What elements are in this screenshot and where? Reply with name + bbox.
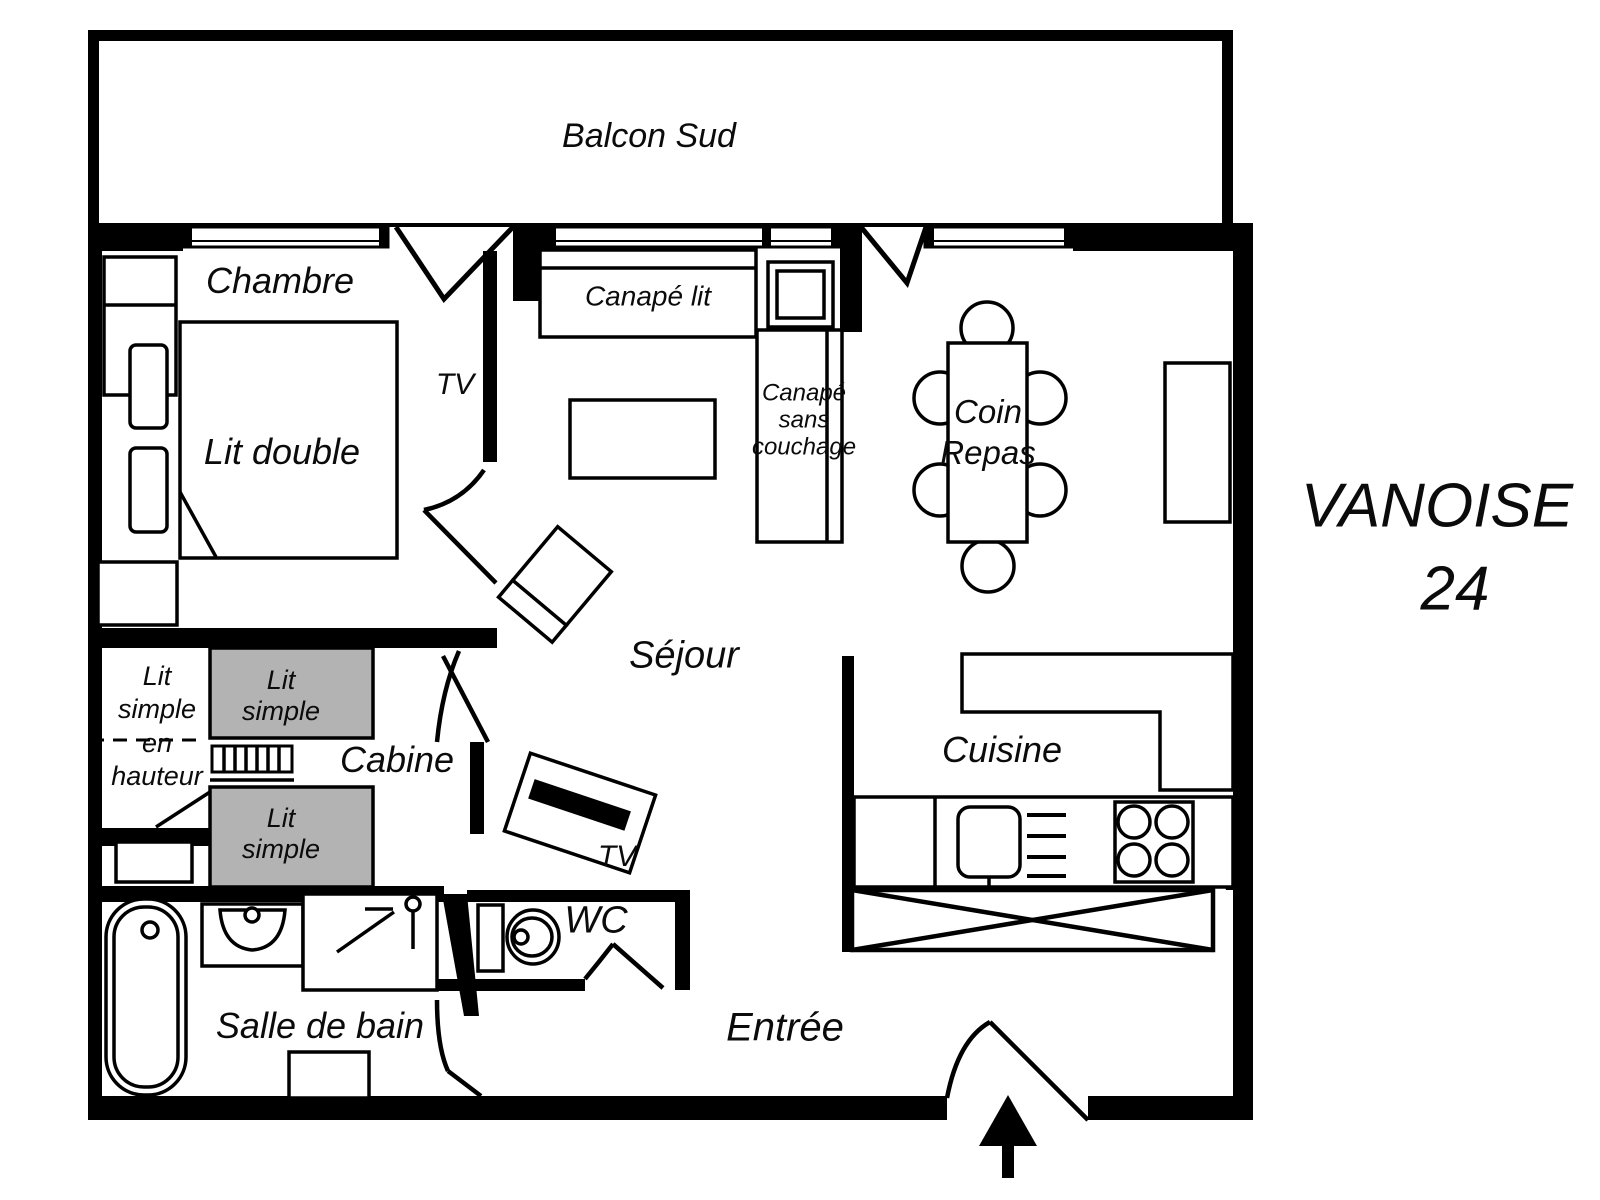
south-wall-left [88, 1096, 947, 1120]
west-wall [88, 223, 102, 1120]
door-cabin [437, 651, 488, 742]
bathtub-drain [142, 922, 158, 938]
nightstand-top [130, 345, 167, 428]
bedroom-east-wall [483, 251, 497, 462]
cabin-east-wall [470, 742, 484, 834]
plan-title: VANOISE [1301, 471, 1573, 540]
toilet-cistern [478, 905, 503, 971]
label-single-bed-bottom: Lit simple [242, 803, 320, 865]
label-sofa-plain-l2: sans [752, 408, 856, 435]
label-dining-l2: Repas [940, 432, 1035, 473]
plan-title-number: 24 [1421, 554, 1490, 623]
nightstand-bottom [130, 448, 167, 532]
label-sofa-bed: Canapé lit [585, 280, 711, 311]
hob-burner [1156, 806, 1188, 838]
sideboard [1165, 363, 1230, 522]
balcony-door-living [861, 227, 926, 283]
bathroom-wc-wedge-wall [442, 894, 479, 1016]
label-single-top-l1: Lit [242, 665, 320, 696]
hob-burner [1118, 844, 1150, 876]
kitchen-sink [958, 807, 1020, 877]
label-balcony: Balcon Sud [562, 117, 736, 155]
label-kitchen: Cuisine [942, 730, 1062, 770]
north-wall-d [1073, 224, 1253, 251]
east-wall [1233, 224, 1253, 1120]
shower-head [406, 897, 420, 911]
window-living [547, 227, 840, 247]
label-living-tv: TV [598, 840, 636, 874]
wc-right-wall [675, 891, 690, 990]
hob-burner [1156, 844, 1188, 876]
label-bathroom: Salle de bain [216, 1006, 424, 1046]
basin-tap [245, 908, 259, 922]
wc-bottom-wall [435, 979, 585, 991]
bunk-shelf [116, 842, 192, 882]
coffee-table [570, 400, 715, 478]
label-wc: WC [564, 900, 627, 943]
door-entrance [947, 1022, 1088, 1120]
wc-furniture [478, 905, 559, 971]
balcony-wall-right [1222, 30, 1233, 225]
entrance-arrow-icon [979, 1095, 1037, 1178]
label-sofa-plain: Canapé sans couchage [752, 381, 856, 462]
label-entry: Entrée [726, 1006, 844, 1051]
kitchen-bar [852, 890, 1213, 950]
label-bedroom: Chambre [206, 261, 354, 301]
balcony-wall-top [88, 30, 1233, 41]
kitchen-furniture [852, 654, 1233, 950]
north-wall-a [88, 224, 183, 251]
bunk-ladder [210, 746, 294, 780]
hob-burner [1118, 806, 1150, 838]
label-bunk-l4: hauteur [111, 760, 203, 793]
label-bunk-l2: simple [111, 694, 203, 727]
south-wall-right [1088, 1096, 1253, 1120]
label-single-bed-top: Lit simple [242, 665, 320, 727]
door-wc [585, 944, 663, 988]
bedroom-cupboard [98, 562, 177, 625]
label-bunk-l1: Lit [111, 660, 203, 693]
label-corridor-tv: TV [436, 368, 474, 402]
label-dining: Coin Repas [940, 391, 1035, 474]
label-living: Séjour [629, 635, 739, 678]
label-single-bottom-l2: simple [242, 834, 320, 865]
floor-plan: Balcon Sud Chambre Lit double TV Canapé … [0, 0, 1600, 1200]
north-wall-pillar-c [840, 224, 862, 332]
label-sofa-plain-l1: Canapé [752, 381, 856, 408]
living-furniture [499, 250, 842, 873]
washing-machine [289, 1052, 369, 1098]
armchair [499, 527, 612, 642]
bathroom-furniture [106, 894, 437, 1098]
label-bunk: Lit simple en hauteur [111, 660, 203, 794]
label-sofa-plain-l3: couchage [752, 434, 856, 461]
door-bedroom [424, 470, 496, 583]
label-single-bottom-l1: Lit [242, 803, 320, 834]
window-dining [925, 227, 1073, 247]
balcony-wall-left [88, 30, 99, 225]
label-cabin: Cabine [340, 740, 454, 780]
dining-chair [962, 540, 1014, 592]
label-double-bed: Lit double [204, 432, 360, 472]
label-bunk-l3: en [111, 727, 203, 760]
bedroom-cabin-wall [88, 628, 497, 648]
window-bedroom [183, 227, 388, 247]
bunk-diagonal [156, 792, 210, 827]
label-single-top-l2: simple [242, 696, 320, 727]
label-dining-l1: Coin [940, 391, 1035, 432]
